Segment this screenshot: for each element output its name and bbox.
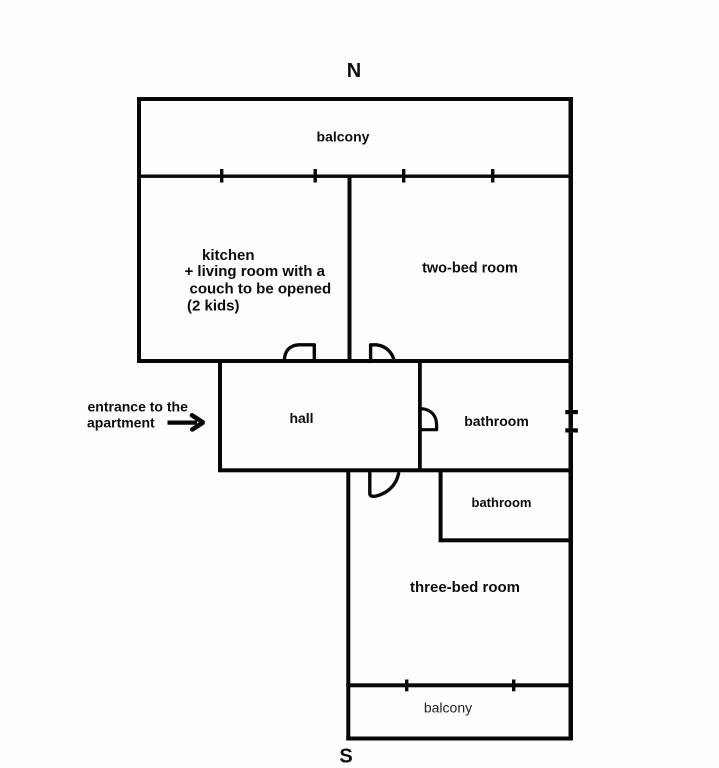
- svg-text:kitchen: kitchen: [202, 247, 255, 264]
- svg-text:(2 kids): (2 kids): [187, 297, 240, 314]
- svg-text:hall: hall: [289, 410, 313, 426]
- svg-text:S: S: [339, 746, 352, 768]
- svg-text:entrance to the: entrance to the: [88, 399, 189, 415]
- svg-text:+ living room with a: + living room with a: [185, 263, 326, 280]
- svg-text:bathroom: bathroom: [464, 413, 529, 429]
- svg-text:bathroom: bathroom: [472, 495, 532, 510]
- svg-text:balcony: balcony: [424, 700, 472, 716]
- svg-text:balcony: balcony: [317, 129, 370, 145]
- svg-text:two-bed room: two-bed room: [422, 260, 518, 276]
- svg-text:apartment: apartment: [87, 415, 155, 431]
- svg-text:couch to be opened: couch to be opened: [190, 280, 332, 297]
- svg-text:three-bed room: three-bed room: [410, 579, 520, 596]
- svg-text:N: N: [347, 60, 361, 82]
